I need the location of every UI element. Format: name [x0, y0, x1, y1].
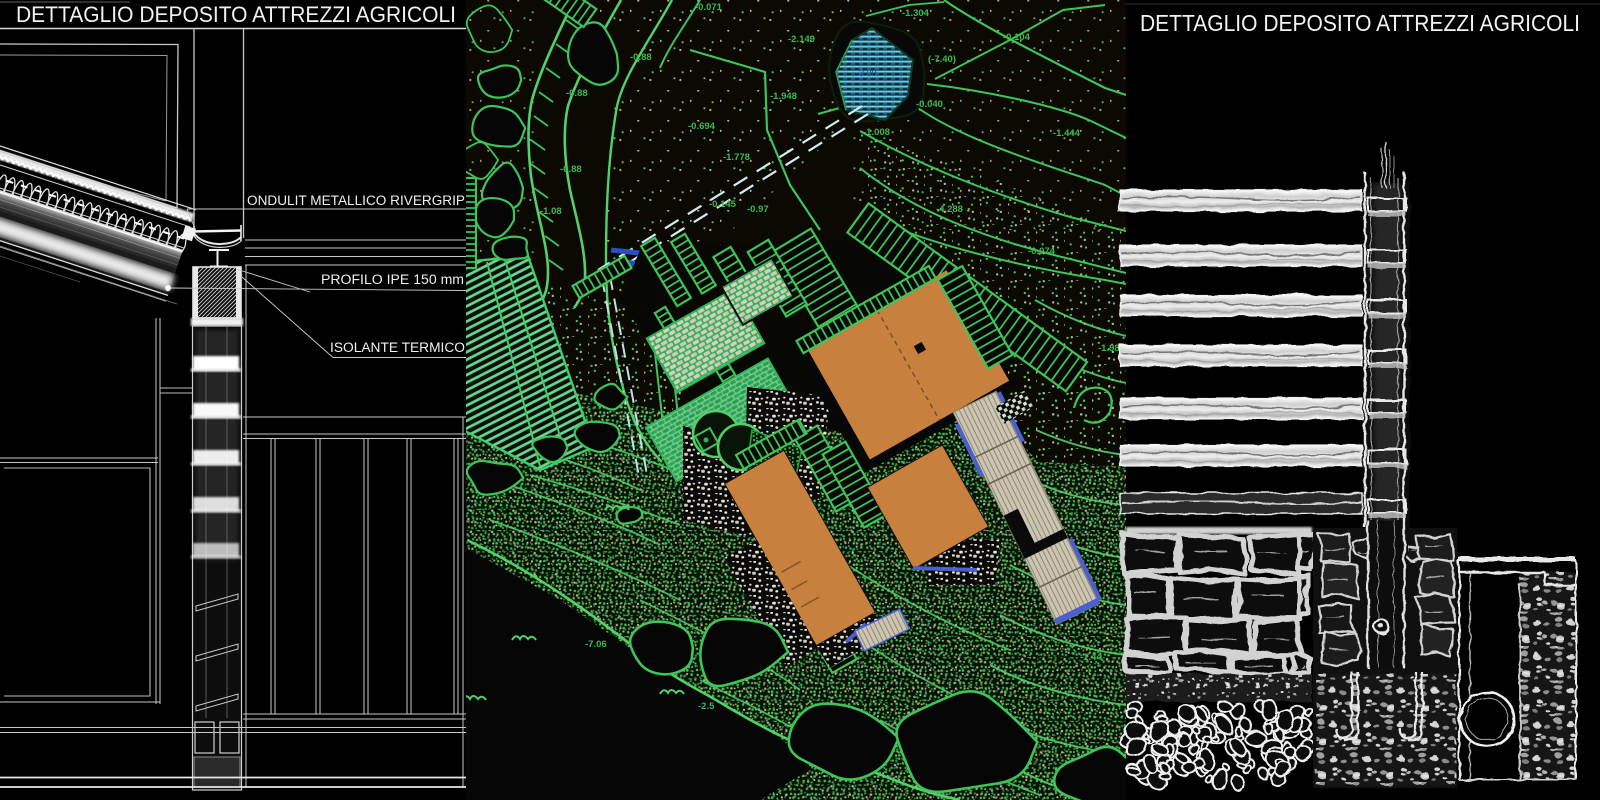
svg-text:-1.444: -1.444 [1053, 128, 1081, 139]
svg-text:-0.074: -0.074 [1028, 246, 1056, 257]
svg-text:DETTAGLIO DEPOSITO ATTREZZI AG: DETTAGLIO DEPOSITO ATTREZZI AGRICOLI [16, 2, 456, 27]
svg-text:-0.145: -0.145 [709, 199, 737, 210]
svg-text:-0.88: -0.88 [560, 164, 582, 175]
svg-text:-1.778: -1.778 [723, 152, 750, 163]
svg-text:-0.88: -0.88 [566, 88, 588, 99]
svg-text:ISOLANTE TERMICO: ISOLANTE TERMICO [330, 340, 465, 355]
svg-text:-0.88: -0.88 [630, 52, 652, 63]
svg-text:-2.5: -2.5 [698, 701, 715, 712]
svg-text:-0.071: -0.071 [695, 2, 723, 13]
svg-text:-0.104: -0.104 [1003, 32, 1031, 43]
svg-text:-0.040: -0.040 [916, 99, 943, 110]
svg-text:-2.149: -2.149 [788, 34, 815, 45]
svg-text:(-7.40): (-7.40) [928, 54, 956, 65]
svg-text:-0.694: -0.694 [688, 121, 716, 132]
svg-text:-1.08: -1.08 [540, 206, 562, 217]
svg-text:-0.97: -0.97 [747, 204, 769, 215]
svg-text:ONDULIT METALLICO RIVERGRIP: ONDULIT METALLICO RIVERGRIP [247, 193, 465, 208]
svg-text:-1.44: -1.44 [1080, 652, 1102, 663]
svg-text:-4.288: -4.288 [936, 204, 963, 215]
svg-text:-1.008: -1.008 [863, 127, 890, 138]
svg-text:-3.00: -3.00 [856, 68, 877, 78]
svg-text:-1.948: -1.948 [770, 91, 797, 102]
svg-text:-7.06: -7.06 [585, 639, 607, 650]
svg-text:-1.304: -1.304 [902, 8, 930, 19]
svg-text:PROFILO IPE 150 mm: PROFILO IPE 150 mm [321, 272, 464, 287]
svg-text:DETTAGLIO DEPOSITO ATTREZZI AG: DETTAGLIO DEPOSITO ATTREZZI AGRICOLI [1140, 10, 1580, 36]
